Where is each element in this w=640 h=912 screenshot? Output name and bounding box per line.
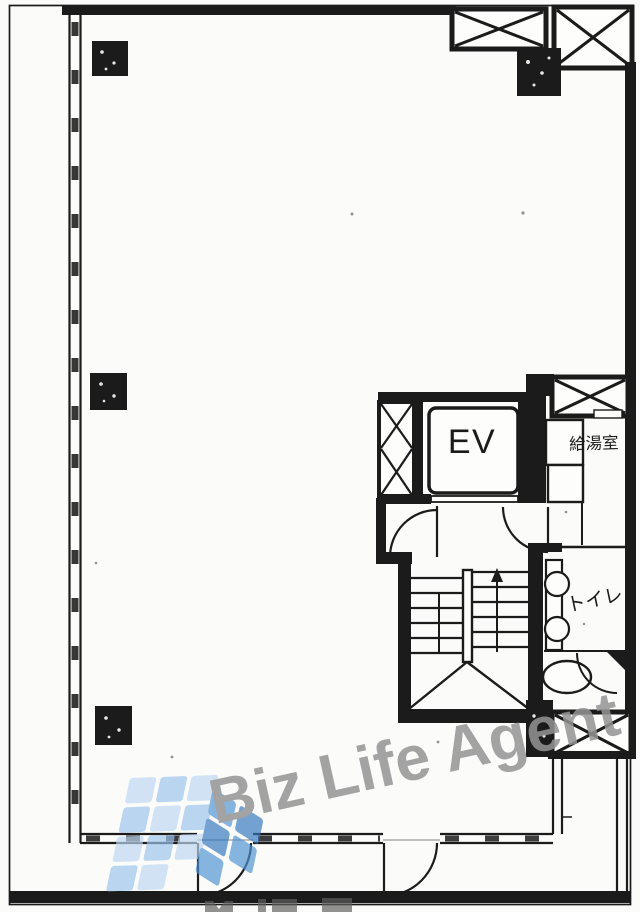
left-window-wall — [70, 13, 81, 843]
top-exterior-wall — [62, 6, 456, 15]
column-top-left — [92, 41, 128, 76]
staircase — [409, 568, 529, 709]
service-core: EV 給湯室 — [376, 374, 636, 891]
door-arc — [390, 510, 437, 557]
stair-center-rail — [463, 570, 472, 662]
column-top-right — [517, 48, 561, 96]
column-bottom-left — [95, 706, 132, 745]
wash-basin — [545, 572, 569, 596]
wall-segment — [440, 834, 553, 843]
hall-doors — [390, 506, 548, 557]
elevator-door — [431, 496, 518, 502]
bottom-door-right — [384, 843, 437, 896]
door-arc — [384, 843, 437, 896]
watermark: Biz Life Agent — [106, 679, 626, 912]
toilet-area: トイレ — [543, 560, 627, 693]
hall-door-left — [390, 506, 437, 557]
elevator-side-shaft — [379, 402, 414, 497]
toilet-label: トイレ — [565, 584, 625, 616]
bottom-exterior-wall — [10, 891, 631, 903]
elevator-label: EV — [448, 423, 496, 461]
floor-plan-page: EV 給湯室 — [0, 0, 640, 912]
wall-segment — [253, 834, 383, 843]
floor-plan-drawing: EV 給湯室 — [0, 0, 640, 912]
column-mid-left — [90, 373, 127, 410]
elevator-area: EV — [378, 392, 546, 504]
stair-left-wall — [398, 560, 411, 722]
wash-basin — [545, 617, 569, 641]
kitchenette-label: 給湯室 — [569, 433, 619, 454]
